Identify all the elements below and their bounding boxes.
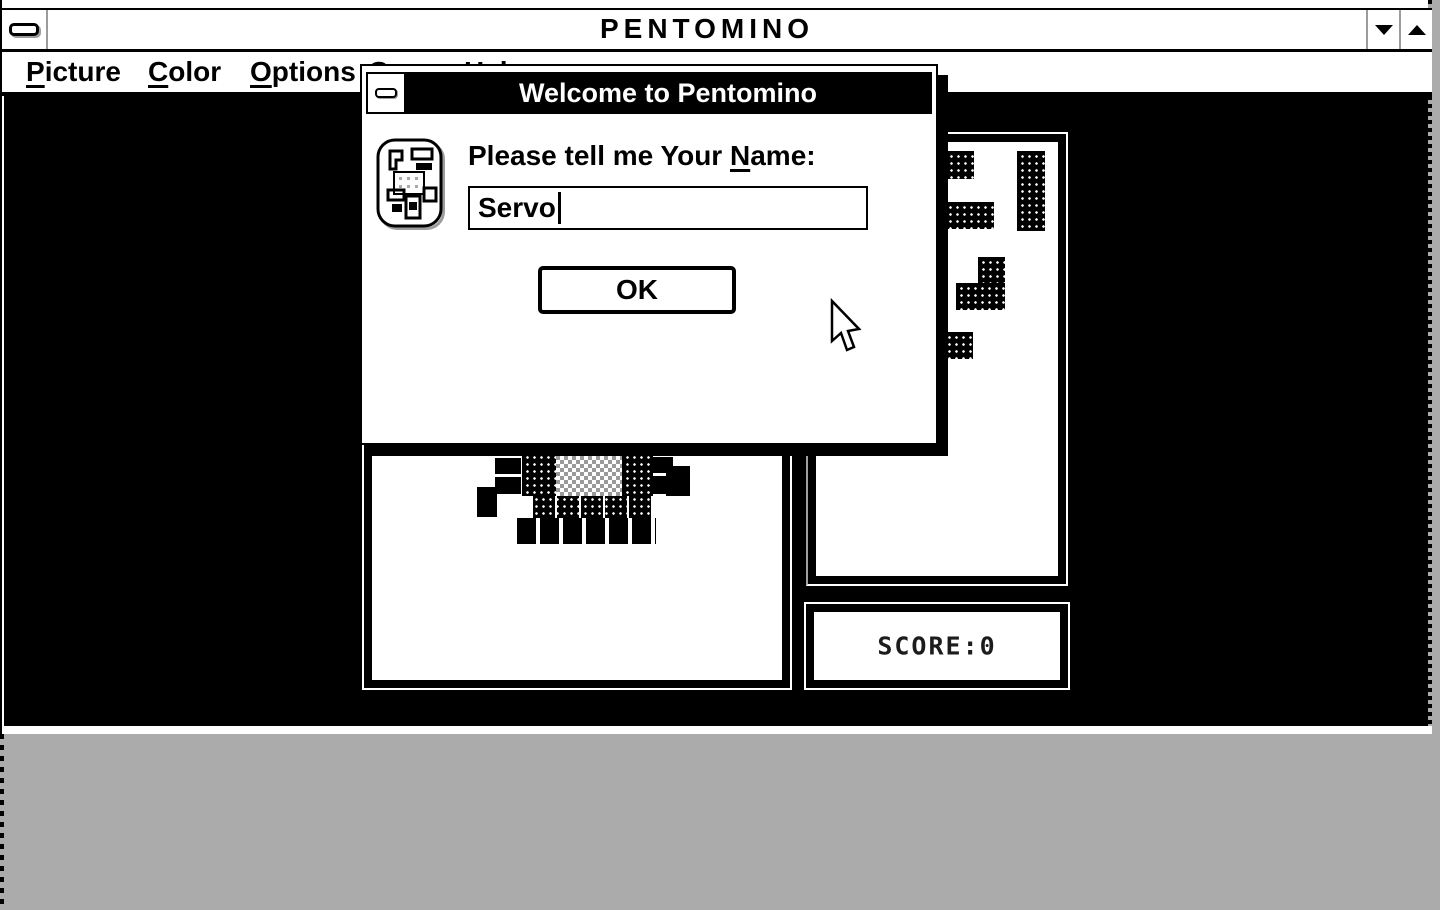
dialog-title: Welcome to Pentomino	[404, 72, 932, 114]
score-panel: SCORE:0	[804, 602, 1070, 690]
menu-item-options[interactable]: Options	[250, 56, 356, 88]
placed-piece-textured	[622, 452, 653, 496]
tray-piece-l-top[interactable]	[978, 257, 1005, 285]
window-title: PENTOMINO	[48, 10, 1366, 49]
window-border-bottom	[2, 726, 1432, 734]
dialog-system-menu-button[interactable]	[366, 72, 404, 114]
mouse-cursor-icon	[828, 298, 864, 358]
name-prompt-label: Please tell me Your Name:	[468, 140, 816, 172]
score-text: SCORE:0	[814, 632, 1060, 661]
ok-button[interactable]: OK	[538, 266, 736, 314]
menu-item-color[interactable]: Color	[148, 56, 221, 88]
placed-piece-block	[477, 487, 497, 517]
down-triangle-icon	[1375, 25, 1393, 35]
welcome-dialog: Welcome to Pentomino Please tell me Your…	[360, 64, 938, 445]
placed-piece-comb	[517, 518, 656, 544]
text-caret	[558, 192, 561, 224]
pentomino-app-icon	[376, 138, 446, 232]
tray-piece-square[interactable]	[946, 151, 974, 179]
placed-piece-block	[495, 477, 521, 494]
system-menu-icon	[375, 88, 397, 98]
name-input[interactable]: Servo	[468, 186, 868, 230]
system-menu-icon	[9, 23, 39, 36]
tray-piece-small[interactable]	[944, 332, 973, 359]
placed-piece-block	[666, 466, 690, 496]
placed-piece-row	[533, 496, 651, 518]
menu-item-picture[interactable]: Picture	[26, 56, 121, 88]
tray-piece-horizontal[interactable]	[938, 202, 994, 229]
system-menu-button[interactable]	[2, 10, 48, 49]
window-border-top	[2, 0, 1432, 8]
up-triangle-icon	[1408, 25, 1426, 35]
placed-piece-checker	[556, 452, 622, 496]
maximize-button[interactable]	[1399, 10, 1432, 49]
placed-piece-textured	[522, 452, 556, 496]
placed-piece-block	[495, 458, 521, 474]
desktop-edge-dashes	[0, 734, 4, 910]
dialog-title-row: Welcome to Pentomino	[366, 72, 932, 114]
tray-piece-l-bottom[interactable]	[956, 283, 1005, 310]
tray-piece-bar[interactable]	[1017, 151, 1045, 231]
title-bar: PENTOMINO	[2, 8, 1432, 52]
window-border-right	[1432, 0, 1440, 734]
minimize-button[interactable]	[1366, 10, 1399, 49]
name-input-value: Servo	[478, 192, 556, 224]
